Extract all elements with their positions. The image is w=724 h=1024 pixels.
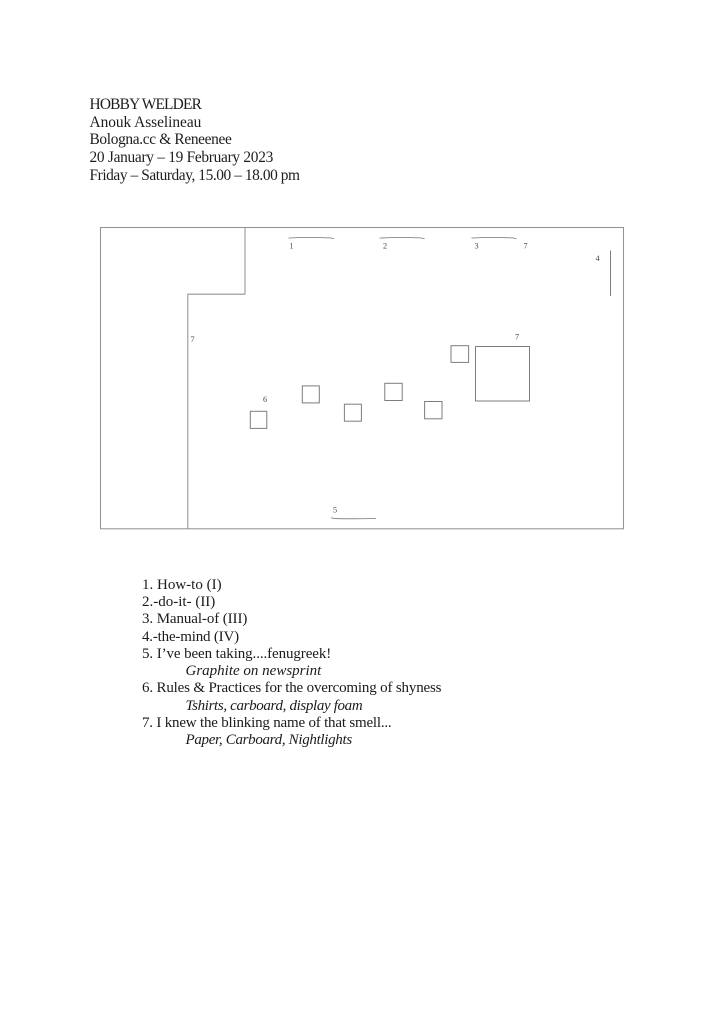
svg-text:7: 7 [515, 333, 519, 342]
svg-text:1: 1 [290, 242, 294, 251]
svg-text:2: 2 [383, 242, 387, 251]
svg-text:3: 3 [475, 242, 479, 251]
svg-text:5: 5 [333, 506, 337, 515]
svg-text:4: 4 [596, 254, 600, 263]
svg-text:7: 7 [191, 335, 195, 344]
svg-text:6: 6 [263, 395, 267, 404]
svg-text:7: 7 [524, 242, 528, 251]
